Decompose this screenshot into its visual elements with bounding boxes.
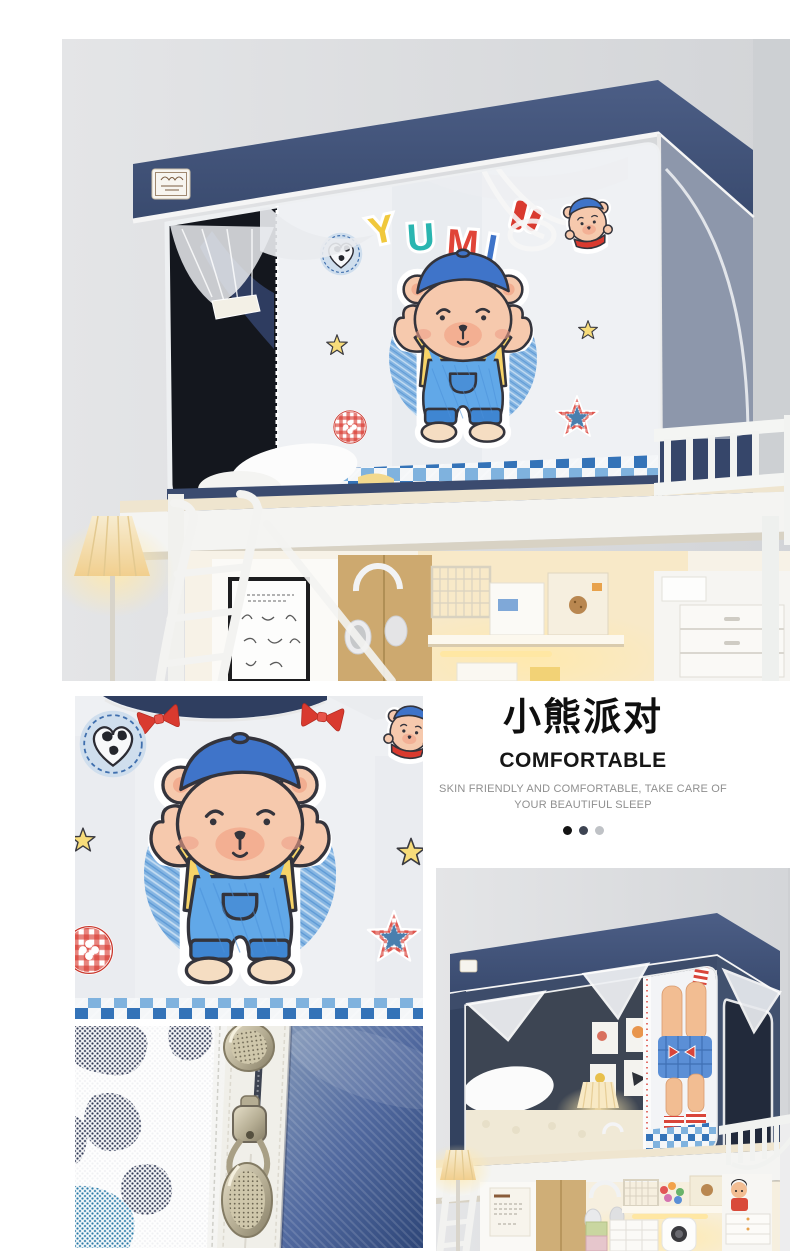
storage-under-shelf — [586, 1218, 696, 1251]
tagline-line-1: SKIN FRIENDLY AND COMFORTABLE, TAKE CARE… — [376, 782, 790, 798]
angle-view-photo — [436, 868, 790, 1251]
denim-fabric — [280, 1026, 423, 1248]
gingham-button-print — [75, 927, 112, 974]
tagline-line-2: YOUR BEAUTIFUL SLEEP — [376, 798, 790, 814]
tagline: SKIN FRIENDLY AND COMFORTABLE, TAKE CARE… — [376, 782, 790, 814]
product-detail-page: Y U M I — [0, 0, 790, 1260]
wood-cabinet — [338, 555, 432, 681]
series-subtitle: COMFORTABLE — [376, 749, 790, 773]
intro-block: 小熊派对 COMFORTABLE SKIN FRIENDLY AND COMFO… — [376, 698, 790, 835]
series-title: 小熊派对 — [376, 698, 790, 740]
mesh-fabric — [75, 1026, 235, 1248]
led-light-bar — [440, 651, 552, 657]
wall-card — [490, 1188, 530, 1236]
cow-heart-print — [80, 711, 147, 778]
brand-label-badge — [152, 169, 190, 199]
bed-right-leg — [762, 516, 779, 681]
hero-product-photo: Y U M I — [62, 39, 790, 681]
checker-hem — [75, 998, 423, 1019]
pager-dots — [376, 826, 790, 835]
character-print-curtain — [643, 964, 716, 1160]
pager-dot-2 — [579, 826, 588, 835]
pager-dot-3 — [595, 826, 604, 835]
zipper-closeup-photo — [75, 1026, 423, 1248]
right-cabinet — [722, 1174, 772, 1251]
print-closeup-photo — [75, 696, 423, 1019]
gingham-button-print — [334, 411, 366, 443]
svg-text:U: U — [406, 216, 436, 260]
brand-label-badge — [460, 960, 477, 972]
desk-scene — [480, 1174, 780, 1251]
pager-dot-1 — [563, 826, 572, 835]
